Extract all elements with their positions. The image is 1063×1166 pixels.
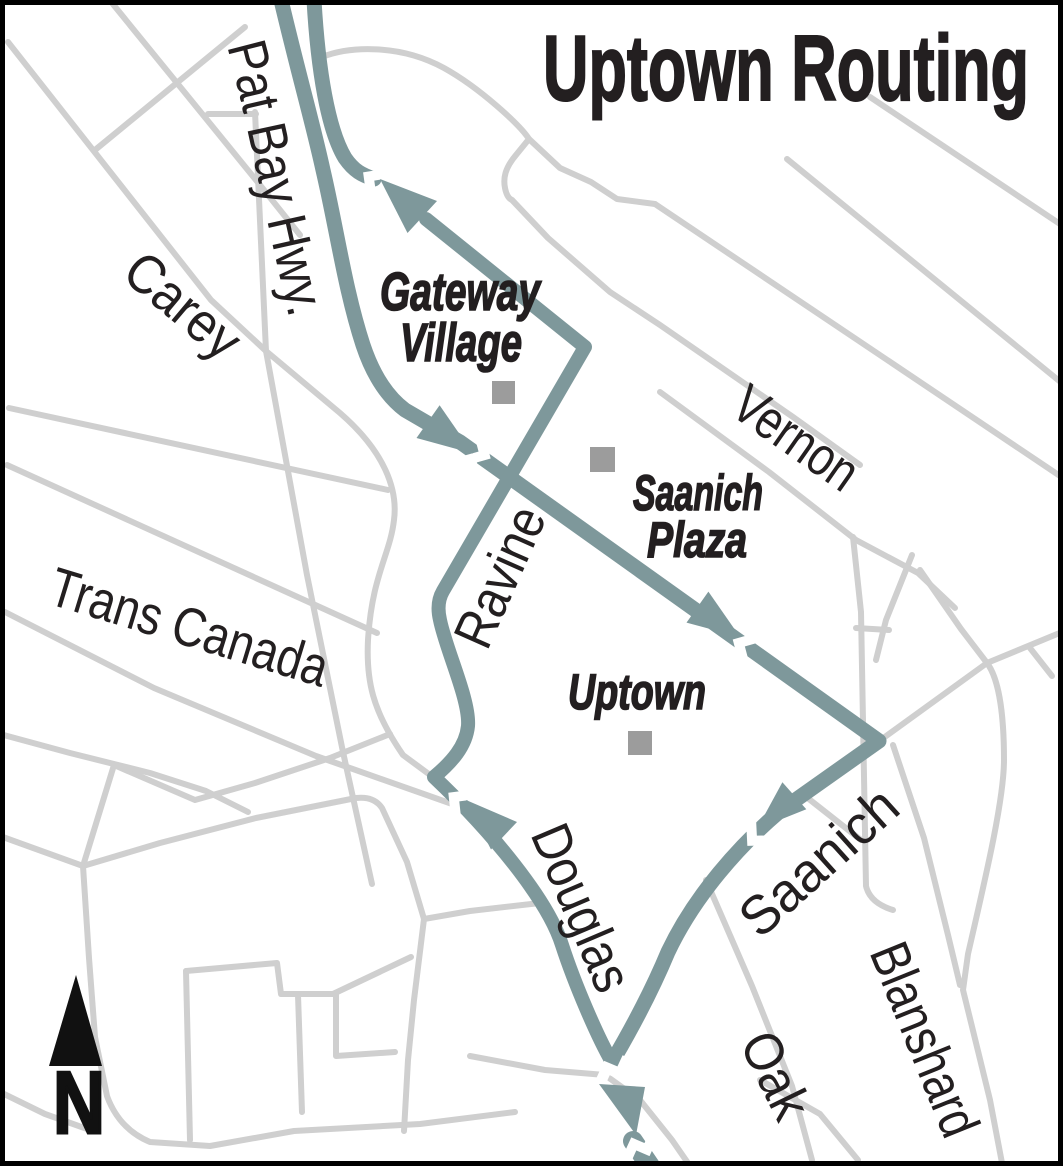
svg-text:Uptown: Uptown <box>568 664 706 720</box>
svg-text:Village: Village <box>400 313 522 373</box>
svg-text:N: N <box>53 1053 105 1152</box>
svg-text:Uptown Routing: Uptown Routing <box>543 16 1029 120</box>
svg-text:Plaza: Plaza <box>647 512 747 568</box>
